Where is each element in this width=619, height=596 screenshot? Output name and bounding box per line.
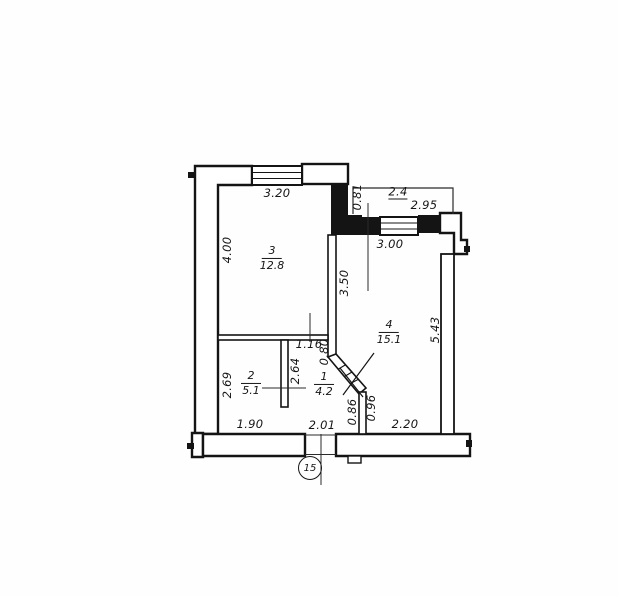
room-label-4: 4 15.1 — [377, 319, 402, 345]
wall-bottom-right — [336, 434, 470, 456]
dim-room4-bottom: 2.20 — [392, 417, 419, 431]
room-number: 4 — [377, 319, 402, 331]
floor-plan: 3.20 2.4 2.95 3.00 1.16 1.90 2.01 2.20 4… — [0, 0, 619, 596]
partition-room2-room1 — [281, 340, 288, 407]
wall-tick-bottom-right — [466, 440, 472, 447]
wall-top-right-of-window — [302, 164, 348, 184]
dim-balcony-offset: 0.81 — [350, 184, 364, 211]
window-room3 — [252, 166, 302, 185]
room-area: 12.8 — [260, 260, 285, 272]
dim-room2-partition: 2.64 — [288, 358, 302, 385]
floor-plan-drawing — [0, 0, 619, 596]
room-label-2: 2 5.1 — [241, 370, 261, 396]
x-mark — [340, 353, 374, 397]
dim-room4-depth: 5.43 — [428, 317, 442, 344]
wall-tick-bottom-left — [187, 443, 194, 449]
wall-right-top-notched — [440, 213, 467, 254]
sheet-marker: 15 — [298, 456, 322, 480]
room-number: 3 — [260, 245, 285, 257]
dim-top-window: 3.20 — [264, 186, 291, 200]
wall-window-right-pier — [418, 215, 440, 233]
sheet-marker-number: 15 — [304, 463, 317, 474]
dim-balcony-area: 2.4 — [388, 185, 407, 200]
room-area: 5.1 — [241, 385, 261, 397]
dim-room3-depth: 4.00 — [220, 237, 234, 264]
room-area: 15.1 — [377, 334, 402, 346]
room-label-1: 1 4.2 — [314, 371, 334, 397]
threshold-fixture — [348, 456, 361, 463]
dim-hall-offset: 0.80 — [317, 339, 331, 366]
dim-room2-depth: 2.69 — [220, 372, 234, 399]
window-room4 — [380, 217, 418, 235]
dim-chamfer-right: 0.96 — [364, 395, 378, 422]
room-number: 2 — [241, 370, 261, 382]
wall-window-left-pier — [362, 217, 380, 235]
wall-tick-right-notch — [464, 246, 470, 252]
dim-room4-window: 3.00 — [377, 237, 404, 251]
dim-hall-width: 2.01 — [309, 418, 336, 432]
dim-balcony-width: 2.95 — [411, 198, 438, 212]
room-area: 4.2 — [314, 386, 334, 398]
wall-right — [441, 254, 454, 434]
wall-tick-top-left — [188, 172, 195, 178]
dim-room4-partition: 3.50 — [337, 270, 351, 297]
room-number: 1 — [314, 371, 334, 383]
dim-room2-width: 1.90 — [237, 417, 264, 431]
room-label-3: 3 12.8 — [260, 245, 285, 271]
dim-chamfer-left: 0.86 — [345, 399, 359, 426]
wall-bottom-left — [203, 434, 305, 456]
